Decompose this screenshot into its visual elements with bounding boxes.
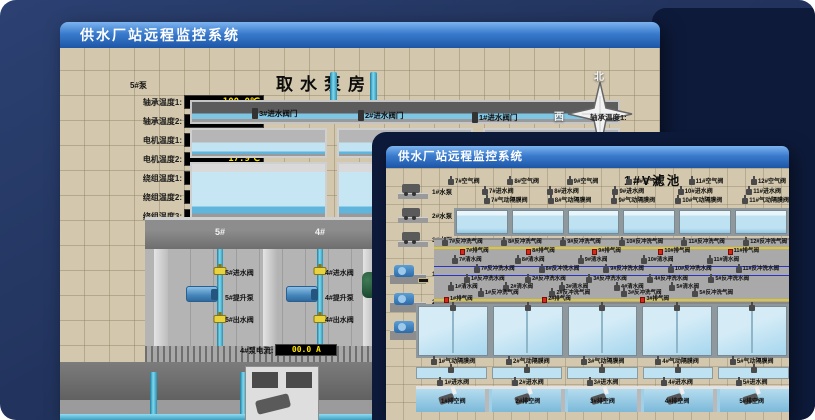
intake-valve-item[interactable]: 2#进水阀门 [358, 110, 403, 121]
inlet-trough [416, 367, 487, 379]
inlet-trough-row [416, 367, 789, 379]
filter-cell [568, 210, 620, 234]
backwash-water-valve-item[interactable]: 9#反冲洗水阀 [603, 267, 644, 273]
diaphragm-valve-item[interactable]: 5#气动隔膜阀 [730, 359, 774, 365]
valve-icon[interactable] [751, 367, 757, 373]
filter-cell [512, 210, 564, 234]
led-row-label: 绕组温度2: [124, 192, 182, 203]
valve-icon [681, 240, 687, 246]
scene-title-intake: 取水泵房 [276, 70, 372, 95]
valve-icon [507, 179, 513, 185]
inlet-valve-item[interactable]: 9#进水阀 [612, 189, 644, 195]
pump-label: 1#水泵 [432, 186, 452, 196]
fan-icon [394, 293, 414, 305]
scada-canvas: 供水厂站远程监控系统 取水泵房 5#泵 轴承温度1: 100.0℃ 轴承温度2:… [0, 0, 815, 420]
diaphragm-valve-item[interactable]: 9#气动隔膜阀 [611, 198, 655, 204]
air-valve-row: 7#空气阀8#空气阀9#空气阀10#空气阀11#空气阀12#空气阀 [448, 179, 786, 185]
valve-icon[interactable] [674, 305, 680, 311]
backwash-air-row-top: 7#反冲洗气阀8#反冲洗气阀9#反冲洗气阀10#反冲洗气阀11#反冲洗气阀12#… [442, 240, 787, 246]
backwash-air-valve-item[interactable]: 7#反冲洗气阀 [442, 240, 483, 246]
led-row-label: 电机温度1: [124, 135, 182, 146]
inlet-valve-label: 5#进水阀 [225, 268, 254, 278]
bearing-temp-label: 轴承温度1: [590, 112, 660, 123]
drain-valve-item[interactable]: 4#排空阀 [665, 399, 690, 405]
exhaust-valve-item[interactable]: 9#排气阀 [592, 249, 621, 255]
valve-icon [431, 359, 437, 365]
pump-label: 2#水泵 [432, 210, 452, 220]
backwash-water-valve-item[interactable]: 11#反冲洗水阀 [736, 267, 779, 273]
valve-icon [743, 240, 749, 246]
backwash-water-valve-item[interactable]: 5#反冲洗水阀 [708, 277, 749, 283]
exhaust-valve-icon [728, 249, 733, 255]
valve-icon [358, 110, 364, 121]
valve-icon [448, 179, 454, 185]
valve-icon [730, 359, 736, 365]
diaphragm-valve-item[interactable]: 10#气动隔膜阀 [675, 198, 722, 204]
pump-current-display: 4#泵电流: 00.0 A [240, 344, 337, 356]
inlet-trough [492, 367, 563, 379]
inlet-valve-label: 4#进水阀 [325, 268, 354, 278]
pump-bay: 4#进水阀 4#提升泵 4#出水阀 [270, 249, 370, 346]
inlet-trough [643, 367, 714, 379]
valve-icon[interactable] [599, 305, 605, 311]
valve-icon [619, 240, 625, 246]
valve-icon[interactable] [525, 305, 531, 311]
led-row-label: 轴承温度1: [124, 97, 182, 108]
pipe-icon [150, 372, 157, 416]
backwash-pump[interactable]: 2#水泵 [388, 204, 460, 228]
valve-icon [668, 267, 674, 273]
filter-cell [735, 210, 787, 234]
water-cell [190, 162, 327, 222]
fan-icon [394, 265, 414, 277]
led-value-display: 00.0 A [275, 344, 337, 356]
backwash-water-valve-item[interactable]: 10#反冲洗水阀 [668, 267, 712, 273]
exhaust-valve-item[interactable]: 11#排气阀 [728, 249, 759, 255]
fan-readout-display [418, 278, 429, 283]
diaphragm-valve-item[interactable]: 2#气动隔膜阀 [506, 359, 550, 365]
valve-icon [515, 258, 521, 264]
diaphragm-valve-item[interactable]: 7#气动隔膜阀 [484, 198, 528, 204]
inlet-valve-item[interactable]: 8#进水阀 [547, 189, 579, 195]
valve-icon [442, 240, 448, 246]
pump-icon [402, 184, 420, 193]
backwash-water-valve-item[interactable]: 4#反冲洗水阀 [647, 277, 688, 283]
platform [398, 241, 428, 247]
valve-icon [567, 179, 573, 185]
filter-cell [679, 210, 731, 234]
equipment-photo-panel [245, 366, 319, 420]
valve-icon [586, 277, 592, 283]
backwash-air-valve-item[interactable]: 5#反冲洗气阀 [692, 291, 733, 297]
lift-pump-icon[interactable] [286, 286, 318, 302]
drain-valve-row: 1#排空阀2#排空阀3#排空阀4#排空阀5#排空阀 [416, 399, 789, 405]
filter-cell [717, 306, 787, 356]
valve-icon [692, 291, 698, 297]
backwash-air-valve-item[interactable]: 9#反冲洗气阀 [560, 240, 601, 246]
clean-water-valve-item[interactable]: 11#清水阀 [707, 258, 739, 264]
drain-valve-item[interactable]: 2#排空阀 [516, 399, 541, 405]
diaphragm-valve-item[interactable]: 11#气动隔膜阀 [742, 198, 789, 204]
valve-icon [578, 258, 584, 264]
clean-water-valve-item[interactable]: 10#清水阀 [641, 258, 674, 264]
air-valve-item[interactable]: 12#空气阀 [751, 179, 786, 185]
valve-icon[interactable] [450, 305, 456, 311]
valve-icon [641, 258, 647, 264]
valve-icon [484, 198, 490, 204]
valve-icon [675, 198, 681, 204]
backwash-air-valve-item[interactable]: 10#反冲洗气阀 [619, 240, 663, 246]
filter-cells-top [454, 208, 789, 236]
inlet-trough [567, 367, 638, 379]
platform [398, 193, 428, 199]
valve-icon [647, 277, 653, 283]
outlet-valve-label: 5#出水阀 [225, 315, 254, 325]
outlet-valve-label: 4#出水阀 [325, 315, 354, 325]
backwash-water-valve-item[interactable]: 2#反冲洗水阀 [525, 277, 566, 283]
pump-current-label: 4#泵电流: [240, 345, 273, 356]
clean-water-valve-item[interactable]: 1#清水阀 [448, 285, 478, 291]
exhaust-valve-icon [526, 249, 531, 255]
inlet-valve-item[interactable]: 10#进水阀 [678, 189, 713, 195]
valve-icon [539, 267, 545, 273]
exhaust-valve-item[interactable]: 3#排气阀 [640, 297, 669, 303]
bay-number-label: 4# [270, 227, 370, 237]
valve-icon [708, 277, 714, 283]
backwash-water-valve-item[interactable]: 3#反冲洗水阀 [586, 277, 627, 283]
valve-icon [611, 198, 617, 204]
valve-icon [525, 277, 531, 283]
exhaust-valve-icon [592, 249, 597, 255]
backwash-water-valve-item[interactable]: 1#反冲洗水阀 [464, 277, 505, 283]
window-v-filter: 供水厂站远程监控系统 1#V滤池 1#水泵 2#水泵 [386, 146, 789, 420]
backwash-water-row-top: 7#反冲洗水阀8#反冲洗水阀9#反冲洗水阀10#反冲洗水阀11#反冲洗水阀 [474, 267, 779, 273]
valve-icon [742, 198, 748, 204]
filter-cell [568, 306, 638, 356]
valve-icon [707, 258, 713, 264]
platform [398, 217, 428, 223]
backwash-air-valve-item[interactable]: 12#反冲洗气阀 [743, 240, 787, 246]
valve-icon [548, 198, 554, 204]
exhaust-valve-item[interactable]: 8#排气阀 [526, 249, 555, 255]
front-window-titlebar[interactable]: 供水厂站远程监控系统 [386, 146, 789, 168]
air-valve-item[interactable]: 7#空气阀 [448, 179, 480, 185]
bay-number-label: 5# [170, 227, 270, 237]
pump5-panel-header: 5#泵 [130, 80, 274, 91]
intake-valve-item[interactable]: 3#进水阀门 [252, 108, 297, 119]
filter-cell [456, 210, 508, 234]
exhaust-valve-row-bottom: 1#排气阀2#排气阀3#排气阀 [444, 297, 669, 303]
valve-icon [474, 267, 480, 273]
led-row-label: 绕组温度1: [124, 173, 182, 184]
led-row-label: 电机温度2: [124, 154, 182, 165]
valve-icon [751, 179, 757, 185]
clean-water-valve-item[interactable]: 9#清水阀 [578, 258, 608, 264]
valve-icon [448, 285, 454, 291]
filter-cells-bottom [416, 304, 789, 358]
inlet-valve-row-top: 7#进水阀8#进水阀9#进水阀10#进水阀11#进水阀 [482, 189, 781, 195]
air-valve-item[interactable]: 8#空气阀 [507, 179, 539, 185]
exhaust-valve-icon [444, 297, 449, 303]
exhaust-valve-icon [640, 297, 645, 303]
pump-icon [402, 232, 420, 241]
valve-gallery: 7#反冲洗气阀8#反冲洗气阀9#反冲洗气阀10#反冲洗气阀11#反冲洗气阀12#… [434, 238, 789, 304]
pump-bay: 5#进水阀 5#提升泵 5#出水阀 [170, 249, 270, 346]
valve-icon[interactable] [448, 367, 454, 373]
backwash-water-valve-item[interactable]: 7#反冲洗水阀 [474, 267, 515, 273]
intake-valve-item[interactable]: 1#进水阀门 [472, 112, 517, 123]
drain-valve-item[interactable]: 3#排空阀 [590, 399, 615, 405]
compass-west-label: 西 [554, 108, 564, 123]
air-valve-item[interactable]: 9#空气阀 [567, 179, 599, 185]
inlet-trough [718, 367, 789, 379]
lift-pump-icon[interactable] [186, 286, 218, 302]
valve-icon [746, 189, 752, 195]
backwash-water-valve-item[interactable]: 8#反冲洗水阀 [539, 267, 580, 273]
exhaust-valve-item[interactable]: 10#排气阀 [658, 249, 690, 255]
diaphragm-valve-item[interactable]: 1#气动隔膜阀 [431, 359, 475, 365]
valve-icon [655, 359, 661, 365]
valve-icon [472, 112, 478, 123]
drain-valve-item[interactable]: 1#排空阀 [441, 399, 466, 405]
valve-icon[interactable] [749, 305, 755, 311]
lift-pump-label: 4#提升泵 [325, 293, 354, 303]
valve-icon [560, 240, 566, 246]
valve-icon [581, 359, 587, 365]
inlet-valve-item[interactable]: 11#进水阀 [746, 189, 781, 195]
exhaust-valve-item[interactable]: 2#排气阀 [542, 297, 571, 303]
diaphragm-valve-row-top: 7#气动隔膜阀8#气动隔膜阀9#气动隔膜阀10#气动隔膜阀11#气动隔膜阀 [484, 198, 789, 204]
valve-icon[interactable] [599, 367, 605, 373]
exhaust-valve-item[interactable]: 7#排气阀 [460, 249, 489, 255]
valve-icon[interactable] [524, 367, 530, 373]
valve-icon[interactable] [675, 367, 681, 373]
valve-icon [501, 240, 507, 246]
water-cell [190, 128, 327, 158]
valve-icon [252, 108, 258, 119]
air-valve-item[interactable]: 11#空气阀 [689, 179, 724, 185]
filter-cell [623, 210, 675, 234]
backwash-air-valve-item[interactable]: 8#反冲洗气阀 [501, 240, 542, 246]
exhaust-valve-row-top: 7#排气阀8#排气阀9#排气阀10#排气阀11#排气阀 [460, 249, 759, 255]
back-window-titlebar[interactable]: 供水厂站远程监控系统 [60, 22, 660, 48]
filter-cell [642, 306, 712, 356]
valve-icon [452, 258, 458, 264]
led-row-label: 轴承温度2: [124, 116, 182, 127]
valve-icon [464, 277, 470, 283]
lift-pump-label: 5#提升泵 [225, 293, 254, 303]
valve-icon [603, 267, 609, 273]
clean-water-valve-row-top: 7#清水阀8#清水阀9#清水阀10#清水阀11#清水阀 [452, 258, 739, 264]
air-valve-item[interactable]: 10#空气阀 [626, 179, 661, 185]
exhaust-valve-icon [658, 249, 663, 255]
pump-icon [402, 208, 420, 217]
exhaust-valve-item[interactable]: 1#排气阀 [444, 297, 473, 303]
filter-cell [493, 306, 563, 356]
valve-icon [736, 267, 742, 273]
valve-icon [689, 179, 695, 185]
filter-cell [418, 306, 488, 356]
valve-icon [626, 179, 632, 185]
compass-north-label: 北 [594, 68, 604, 83]
fan-icon [394, 321, 414, 333]
drain-valve-item[interactable]: 5#排空阀 [739, 399, 764, 405]
exhaust-valve-icon [460, 249, 465, 255]
diaphragm-valve-item[interactable]: 8#气动隔膜阀 [548, 198, 592, 204]
backwash-air-valve-item[interactable]: 11#反冲洗气阀 [681, 240, 724, 246]
exhaust-valve-icon [542, 297, 547, 303]
valve-icon [506, 359, 512, 365]
